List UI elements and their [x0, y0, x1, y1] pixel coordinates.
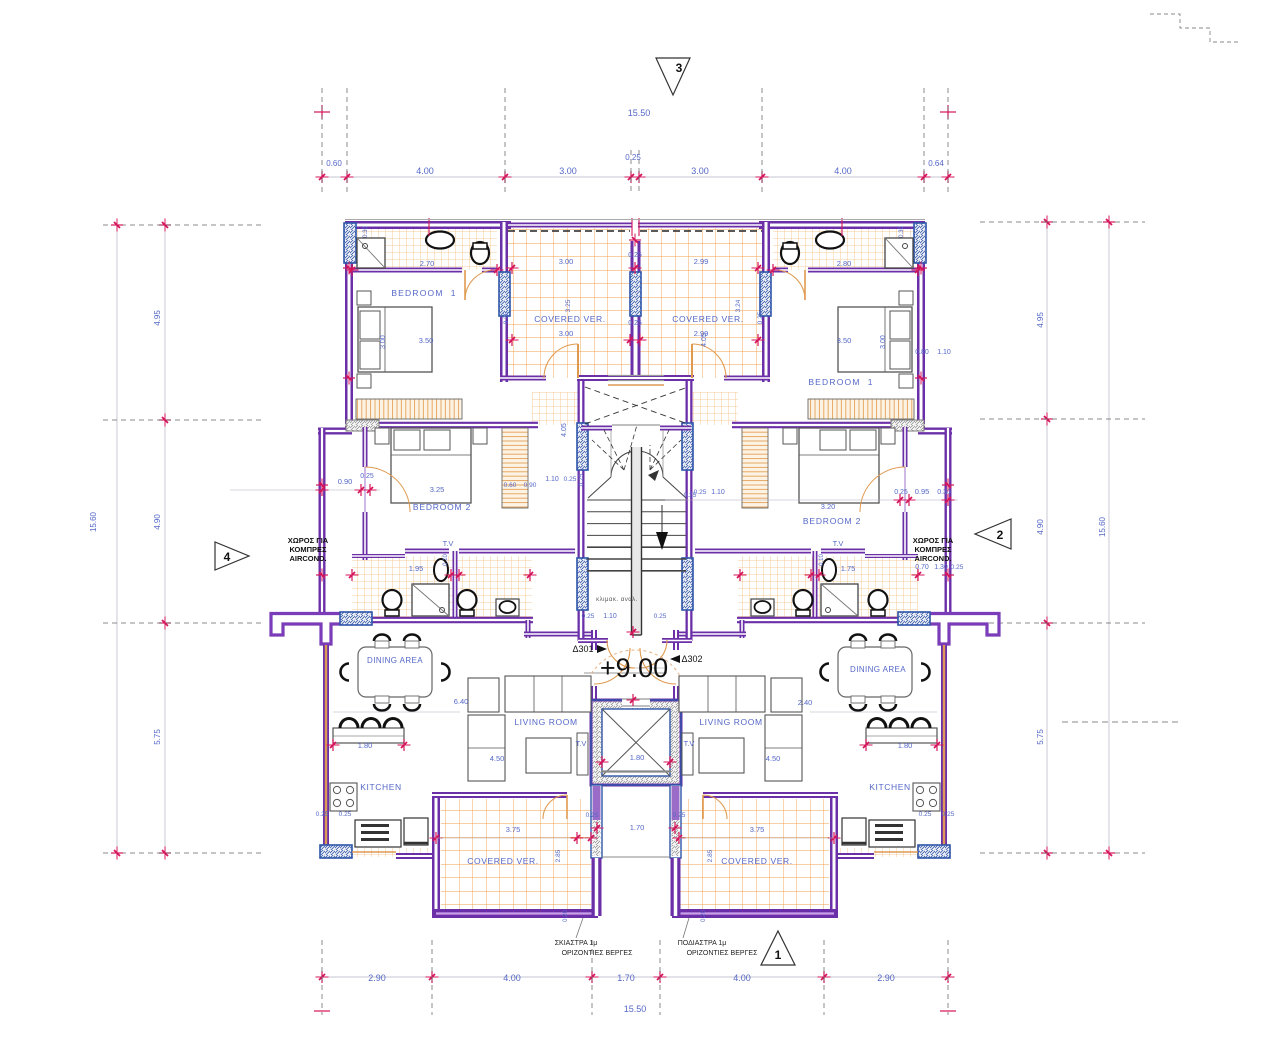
svg-text:1.10: 1.10: [937, 349, 951, 356]
svg-text:1.70: 1.70: [617, 973, 635, 983]
svg-text:1.80: 1.80: [898, 741, 913, 750]
svg-text:LIVING ROOM: LIVING ROOM: [514, 717, 577, 727]
svg-text:AIRCOND.: AIRCOND.: [289, 554, 326, 563]
svg-text:0.30: 0.30: [937, 489, 951, 496]
svg-text:0.60: 0.60: [326, 159, 342, 168]
svg-text:1: 1: [775, 948, 782, 962]
svg-text:2.99: 2.99: [694, 257, 709, 266]
svg-text:4.95: 4.95: [153, 310, 162, 326]
svg-text:3.50: 3.50: [419, 336, 434, 345]
svg-text:LIVING ROOM: LIVING ROOM: [699, 717, 762, 727]
svg-text:3.00: 3.00: [559, 329, 574, 338]
svg-text:COVERED VER.: COVERED VER.: [467, 856, 538, 866]
svg-text:0.25: 0.25: [919, 811, 932, 818]
svg-text:2.80: 2.80: [837, 259, 852, 268]
svg-text:0.25: 0.25: [339, 811, 352, 818]
svg-text:ΚΟΜΠΡΕΣ: ΚΟΜΠΡΕΣ: [289, 545, 327, 554]
svg-text:ΧΩΡΟΣ ΓΙΑ: ΧΩΡΟΣ ΓΙΑ: [288, 536, 329, 545]
svg-text:2.90: 2.90: [877, 973, 895, 983]
svg-text:ΧΩΡΟΣ ΓΙΑ: ΧΩΡΟΣ ΓΙΑ: [913, 536, 954, 545]
svg-text:3.25: 3.25: [565, 299, 572, 312]
svg-text:2.70: 2.70: [420, 259, 435, 268]
svg-text:ΣΚΙΑΣΤΡΑ 1μ: ΣΚΙΑΣΤΡΑ 1μ: [555, 940, 598, 947]
svg-text:KITCHEN: KITCHEN: [360, 782, 402, 792]
svg-text:COVERED VER.: COVERED VER.: [534, 314, 605, 324]
svg-text:15.50: 15.50: [624, 1004, 647, 1014]
svg-text:1.10: 1.10: [711, 489, 725, 496]
svg-text:4: 4: [224, 550, 231, 564]
svg-text:0.25: 0.25: [757, 311, 764, 324]
svg-text:0.95: 0.95: [915, 487, 930, 496]
svg-text:0.20: 0.20: [701, 910, 707, 922]
svg-text:BEDROOM 2: BEDROOM 2: [803, 516, 861, 526]
svg-text:2.85: 2.85: [555, 849, 562, 862]
svg-text:0.25: 0.25: [503, 311, 510, 324]
svg-text:0.10: 0.10: [443, 554, 449, 566]
svg-text:BEDROOM 2: BEDROOM 2: [413, 502, 471, 512]
svg-text:4.95: 4.95: [1036, 312, 1045, 328]
svg-text:0.25: 0.25: [360, 473, 374, 480]
svg-text:3.00: 3.00: [380, 335, 387, 349]
svg-text:15.60: 15.60: [1098, 516, 1107, 537]
svg-text:4.00: 4.00: [416, 166, 434, 176]
svg-text:0.80: 0.80: [915, 349, 929, 356]
svg-text:0.25: 0.25: [625, 153, 641, 162]
svg-text:COVERED VER.: COVERED VER.: [721, 856, 792, 866]
svg-text:4.00: 4.00: [834, 166, 852, 176]
svg-text:4.50: 4.50: [766, 754, 781, 763]
svg-text:1.80: 1.80: [630, 753, 645, 762]
svg-text:0.64: 0.64: [928, 159, 944, 168]
svg-text:0.25: 0.25: [894, 489, 908, 496]
svg-text:4.05: 4.05: [701, 333, 708, 347]
svg-text:1.10: 1.10: [545, 476, 559, 483]
svg-text:ΟΡΙΖΟΝΤΙΕΣ ΒΕΡΓΕΣ: ΟΡΙΖΟΝΤΙΕΣ ΒΕΡΓΕΣ: [687, 950, 759, 957]
svg-text:3.25: 3.25: [430, 485, 445, 494]
svg-text:15.50: 15.50: [628, 108, 651, 118]
svg-text:2.90: 2.90: [368, 973, 386, 983]
svg-text:KITCHEN: KITCHEN: [869, 782, 911, 792]
svg-text:3.00: 3.00: [559, 257, 574, 266]
svg-text:3.75: 3.75: [750, 825, 765, 834]
svg-text:+9.00: +9.00: [600, 653, 668, 683]
svg-text:3.00: 3.00: [880, 335, 887, 349]
svg-text:3.75: 3.75: [506, 825, 521, 834]
svg-text:Δ301: Δ301: [572, 644, 593, 654]
svg-text:T.V: T.V: [443, 539, 454, 548]
svg-text:1.75: 1.75: [841, 564, 856, 573]
svg-text:6.40: 6.40: [454, 697, 469, 706]
svg-text:0.30: 0.30: [363, 226, 369, 238]
svg-text:0.25: 0.25: [628, 252, 642, 259]
svg-text:AIRCOND.: AIRCOND.: [914, 554, 951, 563]
svg-text:0.25: 0.25: [582, 613, 595, 620]
svg-text:3.24: 3.24: [735, 299, 742, 312]
svg-text:3.00: 3.00: [559, 166, 577, 176]
svg-text:0.25: 0.25: [654, 613, 667, 620]
svg-text:3.20: 3.20: [821, 502, 836, 511]
svg-text:ΚΟΜΠΡΕΣ: ΚΟΜΠΡΕΣ: [914, 545, 952, 554]
svg-text:0.25: 0.25: [316, 811, 329, 818]
svg-text:κλιμακ. αναλ.: κλιμακ. αναλ.: [596, 597, 638, 603]
svg-text:0.10: 0.10: [819, 554, 825, 566]
svg-text:4.50: 4.50: [490, 754, 505, 763]
svg-text:1.30: 1.30: [934, 564, 948, 571]
svg-text:0.20: 0.20: [563, 910, 569, 922]
svg-text:COVERED VER.: COVERED VER.: [672, 314, 743, 324]
svg-text:0.30: 0.30: [899, 226, 905, 238]
svg-text:0.90: 0.90: [338, 477, 353, 486]
svg-text:DINING AREA: DINING AREA: [850, 665, 906, 674]
svg-text:3.00: 3.00: [691, 166, 709, 176]
svg-text:5.75: 5.75: [1036, 729, 1045, 745]
svg-text:Δ302: Δ302: [681, 654, 702, 664]
svg-text:0.70: 0.70: [915, 564, 929, 571]
svg-text:0.25: 0.25: [628, 320, 642, 327]
svg-text:1.80: 1.80: [358, 741, 373, 750]
svg-text:4.90: 4.90: [1036, 519, 1045, 535]
svg-text:0.25: 0.25: [586, 812, 599, 819]
svg-text:4.05: 4.05: [561, 423, 568, 437]
svg-text:BEDROOM 1: BEDROOM 1: [808, 377, 873, 387]
svg-text:4.00: 4.00: [503, 973, 521, 983]
svg-text:0.25: 0.25: [673, 812, 686, 819]
svg-text:0.25: 0.25: [951, 564, 964, 571]
svg-text:T.V: T.V: [833, 539, 844, 548]
svg-text:5.75: 5.75: [153, 729, 162, 745]
svg-text:BEDROOM 1: BEDROOM 1: [391, 288, 456, 298]
svg-text:0.25: 0.25: [684, 492, 697, 499]
svg-text:2: 2: [997, 528, 1004, 542]
svg-text:ΠΟΔΙΑΣΤΡΑ 1μ: ΠΟΔΙΑΣΤΡΑ 1μ: [678, 940, 727, 947]
svg-text:15.60: 15.60: [89, 511, 98, 532]
svg-text:DINING AREA: DINING AREA: [367, 656, 423, 665]
svg-text:1.70: 1.70: [630, 823, 645, 832]
svg-text:T.V: T.V: [684, 739, 695, 748]
svg-text:3: 3: [676, 61, 683, 75]
svg-text:0.60: 0.60: [504, 482, 517, 489]
svg-text:ΟΡΙΖΟΝΤΙΕΣ ΒΕΡΓΕΣ: ΟΡΙΖΟΝΤΙΕΣ ΒΕΡΓΕΣ: [562, 950, 634, 957]
svg-text:0.25: 0.25: [578, 473, 585, 486]
svg-text:T.V: T.V: [576, 739, 587, 748]
svg-text:0.25: 0.25: [564, 476, 577, 483]
svg-text:1.10: 1.10: [603, 613, 617, 620]
svg-text:2.85: 2.85: [707, 849, 714, 862]
svg-text:4.00: 4.00: [733, 973, 751, 983]
svg-text:4.90: 4.90: [153, 514, 162, 530]
svg-text:3.50: 3.50: [837, 336, 852, 345]
svg-text:1.95: 1.95: [409, 564, 424, 573]
svg-text:0.25: 0.25: [942, 811, 955, 818]
svg-text:2.40: 2.40: [798, 698, 813, 707]
svg-text:0.90: 0.90: [524, 482, 537, 489]
